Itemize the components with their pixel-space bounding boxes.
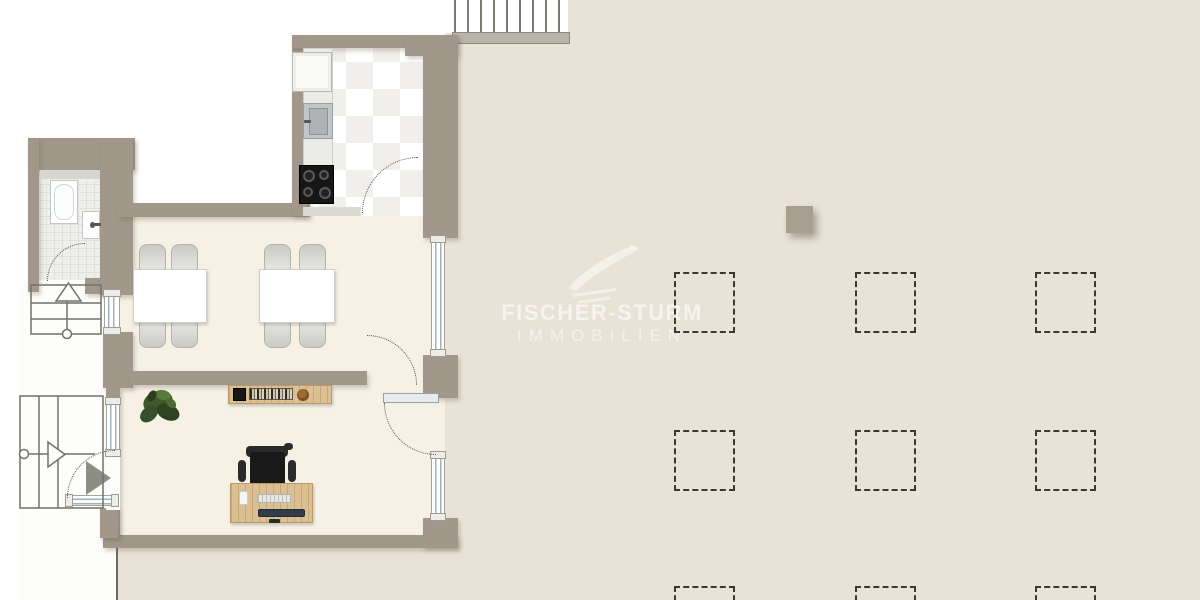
staircase-upper xyxy=(31,283,101,339)
office-chair-armrest xyxy=(238,460,246,482)
bathtub-ledge xyxy=(40,170,100,179)
bathroom-sink xyxy=(82,211,100,239)
dining-chair xyxy=(299,244,326,271)
monitor xyxy=(258,509,305,517)
keyboard xyxy=(257,494,291,503)
kitchen-sink-basin xyxy=(309,108,328,135)
sideboard-books xyxy=(249,388,293,400)
dining-chair xyxy=(299,321,326,348)
potted-plant xyxy=(137,387,182,426)
kitchen-cabinet xyxy=(292,52,332,92)
sideboard-item xyxy=(233,388,246,401)
dining-table xyxy=(133,269,207,323)
stairs-direction-arrow xyxy=(48,442,65,467)
burner-icon xyxy=(319,170,329,180)
sideboard xyxy=(228,385,332,404)
dining-table xyxy=(259,269,335,323)
stove xyxy=(299,165,334,204)
dining-chair xyxy=(171,244,198,271)
bathtub xyxy=(50,180,78,224)
burner-icon xyxy=(303,187,313,197)
kitchen-faucet-icon xyxy=(304,120,311,123)
staircase-lower xyxy=(20,396,104,508)
office-chair-armrest xyxy=(288,460,296,482)
desk-accessory xyxy=(269,519,280,523)
dining-chair xyxy=(171,321,198,348)
burner-icon xyxy=(319,187,331,199)
floor-plan: FISCHER-STURM IMMOBILIEN xyxy=(0,0,1200,600)
sideboard-bowl xyxy=(297,389,309,401)
burner-icon xyxy=(303,170,315,182)
desk xyxy=(230,483,313,523)
kitchen-threshold xyxy=(303,207,361,216)
dining-chair xyxy=(264,321,291,348)
dining-chair xyxy=(139,321,166,348)
office-chair-knob xyxy=(284,443,293,450)
dining-chair xyxy=(264,244,291,271)
faucet-knob xyxy=(90,222,95,228)
kitchen-sink xyxy=(303,103,333,139)
bathtub-basin xyxy=(54,184,74,220)
desk-paper xyxy=(239,491,248,505)
dining-chair xyxy=(139,244,166,271)
